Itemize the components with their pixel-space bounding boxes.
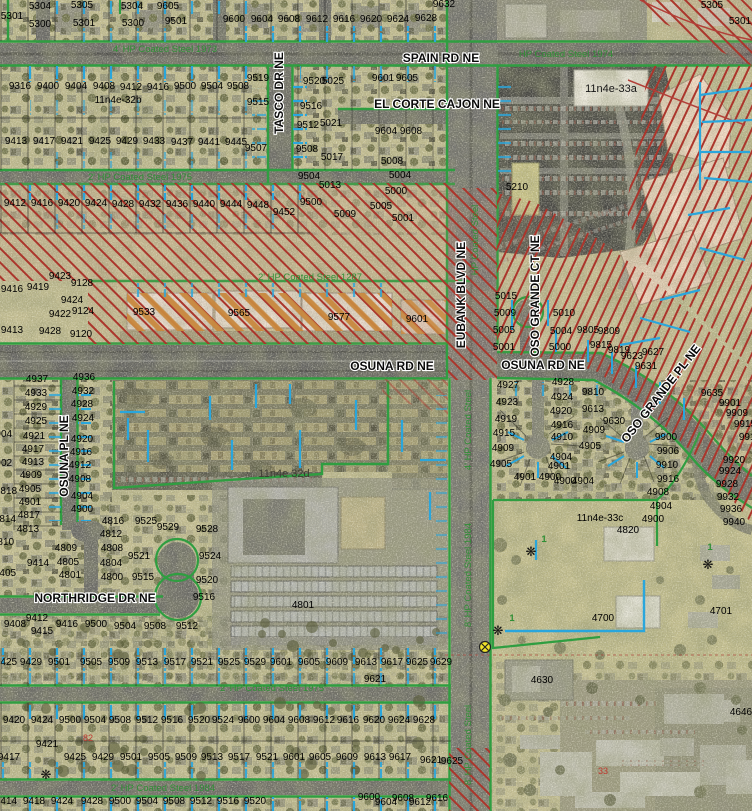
svg-text:5015: 5015: [495, 291, 518, 302]
svg-text:9500: 9500: [174, 81, 197, 92]
svg-text:9501: 9501: [120, 752, 143, 763]
svg-text:9617: 9617: [381, 657, 404, 668]
svg-text:9500: 9500: [85, 619, 108, 630]
svg-text:9508: 9508: [296, 144, 319, 155]
svg-text:9433: 9433: [143, 136, 166, 147]
svg-text:9516: 9516: [161, 715, 184, 726]
svg-text:HP Coated Steel 1974: HP Coated Steel 1974: [519, 49, 613, 60]
svg-text:4932: 4932: [72, 386, 95, 397]
svg-text:4809: 4809: [55, 543, 78, 554]
svg-text:5300: 5300: [29, 19, 52, 30]
svg-text:9605: 9605: [396, 73, 419, 84]
svg-text:9608: 9608: [400, 126, 423, 137]
svg-text:9517: 9517: [164, 657, 187, 668]
svg-text:9516: 9516: [193, 592, 216, 603]
svg-text:9608: 9608: [288, 715, 311, 726]
svg-text:9415: 9415: [31, 626, 54, 637]
svg-text:9500: 9500: [109, 796, 132, 807]
svg-text:9936: 9936: [720, 504, 743, 515]
svg-text:9425: 9425: [89, 136, 112, 147]
svg-text:9500: 9500: [59, 715, 82, 726]
svg-text:9440: 9440: [193, 199, 216, 210]
svg-text:4902: 4902: [0, 458, 13, 469]
svg-text:1: 1: [541, 534, 547, 545]
svg-text:9528: 9528: [196, 524, 219, 535]
svg-text:9425: 9425: [0, 657, 18, 668]
svg-text:4701: 4701: [710, 606, 733, 617]
svg-text:8' HP Coated Steel: 8' HP Coated Steel: [463, 705, 474, 785]
svg-text:2' HP Coated Steel 1975: 2' HP Coated Steel 1975: [220, 683, 324, 694]
svg-text:9501: 9501: [165, 16, 188, 27]
svg-text:5021: 5021: [320, 118, 343, 129]
svg-text:5005: 5005: [493, 325, 516, 336]
svg-text:9604: 9604: [375, 126, 398, 137]
svg-text:9432: 9432: [139, 199, 162, 210]
svg-text:4817: 4817: [18, 510, 41, 521]
svg-text:5017: 5017: [321, 152, 344, 163]
svg-text:9919: 9919: [739, 432, 752, 443]
svg-text:9424: 9424: [61, 295, 84, 306]
svg-text:4910: 4910: [551, 432, 574, 443]
svg-text:5001: 5001: [493, 342, 516, 353]
svg-text:5009: 5009: [334, 209, 357, 220]
svg-text:9620: 9620: [360, 14, 383, 25]
svg-text:1: 1: [707, 542, 713, 553]
svg-text:33: 33: [598, 766, 608, 776]
svg-text:9625: 9625: [406, 657, 429, 668]
svg-text:4916: 4916: [70, 447, 93, 458]
svg-text:11n4e-32b: 11n4e-32b: [94, 95, 142, 106]
svg-text:NORTHRIDGE DR NE: NORTHRIDGE DR NE: [34, 591, 155, 605]
svg-text:4928: 4928: [71, 399, 94, 410]
svg-text:2' HP Coated Steel 1287: 2' HP Coated Steel 1287: [258, 272, 362, 283]
svg-text:4646: 4646: [730, 707, 752, 718]
svg-text:EUBANK BLVD NE: EUBANK BLVD NE: [454, 242, 468, 348]
svg-text:5010: 5010: [553, 308, 576, 319]
svg-text:4901: 4901: [19, 497, 42, 508]
svg-text:9413: 9413: [5, 136, 28, 147]
svg-text:9419: 9419: [27, 282, 50, 293]
svg-text:5301: 5301: [1, 11, 24, 22]
svg-text:9452: 9452: [273, 207, 296, 218]
svg-text:5001: 5001: [392, 213, 415, 224]
svg-text:9616: 9616: [333, 14, 356, 25]
svg-text:4' HP Coated Steel: 4' HP Coated Steel: [463, 390, 474, 470]
svg-text:9604: 9604: [251, 14, 274, 25]
svg-text:4630: 4630: [531, 675, 554, 686]
svg-text:4920: 4920: [550, 406, 573, 417]
svg-text:9805: 9805: [577, 325, 600, 336]
svg-text:9504: 9504: [298, 171, 321, 182]
svg-text:5004: 5004: [389, 170, 412, 181]
svg-text:4905: 4905: [19, 484, 42, 495]
svg-text:9416: 9416: [147, 82, 170, 93]
svg-text:4808: 4808: [101, 543, 124, 554]
svg-text:11n4e-33a: 11n4e-33a: [585, 83, 638, 95]
svg-text:1: 1: [509, 613, 515, 624]
svg-text:9529: 9529: [244, 657, 267, 668]
svg-text:9500: 9500: [300, 197, 323, 208]
svg-text:❋: ❋: [41, 767, 52, 782]
svg-text:9617: 9617: [389, 752, 412, 763]
svg-text:9608: 9608: [278, 14, 301, 25]
svg-text:❋: ❋: [703, 557, 714, 572]
svg-text:9915: 9915: [734, 419, 752, 430]
svg-text:4916: 4916: [551, 420, 574, 431]
svg-text:9612: 9612: [313, 715, 336, 726]
svg-text:4924: 4924: [72, 413, 95, 424]
svg-text:4915: 4915: [493, 428, 516, 439]
svg-text:9509: 9509: [175, 752, 198, 763]
svg-text:4908: 4908: [69, 474, 92, 485]
svg-text:9505: 9505: [80, 657, 103, 668]
svg-text:9621: 9621: [364, 674, 387, 685]
svg-text:9505: 9505: [148, 752, 171, 763]
svg-text:9529: 9529: [157, 522, 180, 533]
svg-text:82: 82: [83, 733, 93, 743]
svg-text:9501: 9501: [48, 657, 71, 668]
svg-text:9916: 9916: [657, 474, 680, 485]
svg-text:9512: 9512: [297, 120, 320, 131]
svg-text:9429: 9429: [20, 657, 43, 668]
svg-text:9525: 9525: [135, 516, 158, 527]
svg-text:9521: 9521: [256, 752, 279, 763]
svg-text:9525: 9525: [218, 657, 241, 668]
svg-text:4805: 4805: [57, 557, 80, 568]
svg-text:9601: 9601: [283, 752, 306, 763]
svg-text:9906: 9906: [657, 446, 680, 457]
svg-text:9516: 9516: [300, 101, 323, 112]
svg-text:4912: 4912: [69, 460, 92, 471]
svg-text:9424: 9424: [85, 198, 108, 209]
svg-text:9521: 9521: [128, 551, 151, 562]
svg-text:9428: 9428: [39, 326, 62, 337]
svg-text:9624: 9624: [387, 14, 410, 25]
svg-text:9613: 9613: [582, 404, 605, 415]
svg-text:4917: 4917: [22, 444, 45, 455]
svg-text:8' HP Coated Steel 1984: 8' HP Coated Steel 1984: [463, 523, 474, 627]
svg-text:5301: 5301: [73, 18, 96, 29]
svg-text:9629: 9629: [430, 657, 453, 668]
svg-text:9421: 9421: [61, 136, 84, 147]
svg-text:9444: 9444: [220, 199, 243, 210]
svg-text:5301: 5301: [729, 16, 752, 27]
svg-text:9425: 9425: [64, 752, 87, 763]
svg-text:4928: 4928: [552, 377, 575, 388]
svg-text:9520: 9520: [196, 575, 219, 586]
svg-text:OSUNA RD NE: OSUNA RD NE: [501, 358, 585, 372]
svg-text:9412: 9412: [4, 198, 27, 209]
svg-text:4812: 4812: [100, 529, 123, 540]
svg-text:4929: 4929: [25, 402, 48, 413]
svg-text:9316: 9316: [9, 81, 32, 92]
svg-text:9601: 9601: [372, 73, 395, 84]
svg-text:EL CORTE CAJON NE: EL CORTE CAJON NE: [374, 97, 500, 111]
svg-text:9621: 9621: [420, 755, 443, 766]
svg-text:9613: 9613: [355, 657, 378, 668]
svg-text:9524: 9524: [212, 715, 235, 726]
svg-text:4905: 4905: [490, 459, 513, 470]
svg-text:4925: 4925: [25, 416, 48, 427]
svg-text:4904: 4904: [650, 501, 673, 512]
svg-text:4909: 4909: [583, 425, 606, 436]
svg-text:9616: 9616: [426, 793, 449, 804]
svg-text:9429: 9429: [116, 136, 139, 147]
svg-text:4905: 4905: [579, 441, 602, 452]
svg-text:9416: 9416: [1, 284, 24, 295]
svg-text:9604: 9604: [263, 715, 286, 726]
svg-text:2' HP Coated Steel 1984: 2' HP Coated Steel 1984: [111, 783, 215, 794]
svg-text:9628: 9628: [413, 715, 436, 726]
svg-text:5004: 5004: [550, 326, 573, 337]
svg-text:9577: 9577: [328, 312, 351, 323]
svg-text:9565: 9565: [228, 308, 251, 319]
svg-text:9928: 9928: [716, 479, 739, 490]
svg-text:9504: 9504: [114, 621, 137, 632]
svg-text:9600: 9600: [223, 14, 246, 25]
svg-text:9940: 9940: [723, 517, 746, 528]
svg-text:9625: 9625: [441, 756, 464, 767]
svg-text:9612: 9612: [306, 14, 329, 25]
svg-text:9423: 9423: [49, 271, 72, 282]
svg-text:9605: 9605: [298, 657, 321, 668]
svg-text:9416: 9416: [56, 619, 79, 630]
svg-text:OSO GRANDE CT NE: OSO GRANDE CT NE: [528, 235, 542, 356]
svg-text:4904: 4904: [572, 476, 595, 487]
svg-text:9421: 9421: [36, 739, 59, 750]
svg-text:9420: 9420: [3, 715, 26, 726]
svg-text:9631: 9631: [635, 361, 658, 372]
svg-text:5025: 5025: [322, 76, 345, 87]
svg-text:9512: 9512: [136, 715, 159, 726]
svg-text:4933: 4933: [25, 388, 48, 399]
svg-text:4909: 4909: [492, 443, 515, 454]
svg-text:9601: 9601: [406, 314, 429, 325]
svg-text:9509: 9509: [108, 657, 131, 668]
svg-text:5000: 5000: [385, 186, 408, 197]
svg-text:9412: 9412: [26, 613, 49, 624]
svg-text:9508: 9508: [163, 796, 186, 807]
svg-text:9413: 9413: [1, 325, 24, 336]
svg-text:4900: 4900: [642, 514, 665, 525]
svg-text:4924: 4924: [551, 392, 574, 403]
svg-text:OSUNA RD NE: OSUNA RD NE: [350, 359, 434, 373]
svg-text:9605: 9605: [157, 1, 180, 12]
svg-text:9605: 9605: [309, 752, 332, 763]
svg-text:9120: 9120: [70, 329, 93, 340]
svg-text:4908: 4908: [647, 487, 670, 498]
svg-text:9414: 9414: [0, 796, 18, 807]
svg-text:9437: 9437: [171, 137, 194, 148]
svg-text:9600: 9600: [238, 715, 261, 726]
svg-text:4923: 4923: [496, 397, 519, 408]
svg-text:9632: 9632: [433, 0, 456, 10]
svg-text:5013: 5013: [319, 180, 342, 191]
svg-text:OSUNA PL NE: OSUNA PL NE: [57, 415, 71, 496]
svg-text:9504: 9504: [136, 796, 159, 807]
svg-text:9520: 9520: [244, 796, 267, 807]
svg-text:11n4e-33c: 11n4e-33c: [577, 513, 624, 524]
svg-text:9512: 9512: [190, 796, 213, 807]
svg-text:9517: 9517: [228, 752, 251, 763]
svg-text:9512: 9512: [176, 621, 199, 632]
svg-text:9508: 9508: [144, 621, 167, 632]
svg-text:4' HP Coated Steel 1973: 4' HP Coated Steel 1973: [113, 44, 217, 55]
svg-text:9429: 9429: [92, 752, 115, 763]
svg-text:4900: 4900: [71, 504, 94, 515]
svg-text:9508: 9508: [109, 715, 132, 726]
svg-text:4813: 4813: [17, 524, 40, 535]
svg-text:9408: 9408: [4, 619, 27, 630]
svg-text:11n4e 32d: 11n4e 32d: [258, 468, 309, 480]
svg-text:❋: ❋: [493, 623, 504, 638]
svg-text:9924: 9924: [719, 466, 742, 477]
svg-text:TASCO DR NE: TASCO DR NE: [272, 52, 286, 134]
svg-text:4801: 4801: [292, 600, 315, 611]
svg-text:9513: 9513: [136, 657, 159, 668]
svg-text:9609: 9609: [336, 752, 359, 763]
svg-text:9620: 9620: [363, 715, 386, 726]
svg-text:5009: 5009: [494, 308, 517, 319]
svg-text:9412: 9412: [120, 82, 143, 93]
svg-text:9416: 9416: [31, 198, 54, 209]
svg-text:4820: 4820: [617, 525, 640, 536]
svg-text:9910: 9910: [656, 460, 679, 471]
svg-text:5000: 5000: [549, 342, 572, 353]
svg-text:9448: 9448: [247, 200, 270, 211]
svg-text:4801: 4801: [59, 570, 82, 581]
svg-text:❋: ❋: [526, 544, 537, 559]
svg-text:9504: 9504: [201, 81, 224, 92]
svg-text:9630: 9630: [603, 416, 626, 427]
svg-text:9521: 9521: [191, 657, 214, 668]
svg-text:4919: 4919: [495, 414, 518, 425]
svg-text:2' HP Coated Steel 1975: 2' HP Coated Steel 1975: [88, 172, 192, 183]
svg-text:9920: 9920: [723, 455, 746, 466]
svg-text:9128: 9128: [71, 278, 94, 289]
svg-text:9428: 9428: [81, 796, 104, 807]
svg-text:4936: 4936: [73, 372, 96, 383]
svg-text:4901: 4901: [514, 472, 537, 483]
svg-text:9507: 9507: [245, 143, 268, 154]
svg-text:4920: 4920: [71, 434, 94, 445]
svg-text:5008: 5008: [381, 156, 404, 167]
svg-text:9414: 9414: [27, 558, 50, 569]
svg-text:9613: 9613: [364, 752, 387, 763]
svg-text:9428: 9428: [112, 199, 135, 210]
svg-text:4927: 4927: [497, 380, 520, 391]
svg-text:9400: 9400: [37, 81, 60, 92]
svg-text:5210: 5210: [506, 182, 529, 193]
svg-text:4800: 4800: [101, 572, 124, 583]
svg-text:9609: 9609: [326, 657, 349, 668]
svg-text:4913: 4913: [22, 457, 45, 468]
svg-text:4810: 4810: [0, 537, 15, 548]
svg-text:9533: 9533: [133, 307, 156, 318]
svg-text:5005: 5005: [370, 201, 393, 212]
svg-text:9515: 9515: [132, 572, 155, 583]
svg-text:4937: 4937: [26, 374, 49, 385]
svg-text:9516: 9516: [217, 796, 240, 807]
svg-text:9124: 9124: [72, 306, 95, 317]
svg-text:9627: 9627: [642, 347, 665, 358]
svg-text:9424: 9424: [51, 796, 74, 807]
svg-text:9405: 9405: [0, 568, 17, 579]
svg-text:9624: 9624: [388, 715, 411, 726]
svg-text:4909: 4909: [20, 470, 43, 481]
svg-text:9909: 9909: [726, 408, 749, 419]
svg-text:5304: 5304: [29, 1, 52, 12]
svg-text:5305: 5305: [701, 0, 724, 11]
svg-text:4818: 4818: [0, 486, 18, 497]
svg-text:9417: 9417: [0, 752, 21, 763]
svg-text:9404: 9404: [65, 81, 88, 92]
svg-text:9519: 9519: [247, 73, 270, 84]
svg-text:HP Coated Steel: HP Coated Steel: [470, 205, 481, 276]
svg-text:9900: 9900: [655, 432, 678, 443]
svg-text:4700: 4700: [592, 613, 615, 624]
svg-text:9524: 9524: [199, 551, 222, 562]
svg-text:4814: 4814: [0, 514, 17, 525]
svg-text:4904: 4904: [71, 491, 94, 502]
svg-text:4816: 4816: [102, 516, 125, 527]
svg-text:9408: 9408: [93, 81, 116, 92]
svg-text:9504: 9504: [84, 715, 107, 726]
svg-text:9422: 9422: [49, 309, 72, 320]
svg-text:4921: 4921: [23, 431, 46, 442]
svg-text:9932: 9932: [717, 492, 740, 503]
svg-text:9513: 9513: [201, 752, 224, 763]
svg-text:9515: 9515: [247, 97, 270, 108]
svg-text:5304: 5304: [121, 1, 144, 12]
svg-text:9616: 9616: [337, 715, 360, 726]
svg-text:5300: 5300: [122, 18, 145, 29]
svg-text:9424: 9424: [31, 715, 54, 726]
svg-text:SPAIN RD NE: SPAIN RD NE: [403, 51, 479, 65]
svg-text:9436: 9436: [166, 199, 189, 210]
svg-text:9809: 9809: [598, 326, 621, 337]
svg-text:9417: 9417: [33, 136, 56, 147]
svg-text:9601: 9601: [270, 657, 293, 668]
svg-text:9810: 9810: [582, 387, 605, 398]
svg-text:9420: 9420: [58, 198, 81, 209]
svg-text:9628: 9628: [415, 13, 438, 24]
svg-text:9418: 9418: [23, 796, 46, 807]
svg-text:9520: 9520: [188, 715, 211, 726]
svg-text:4901: 4901: [548, 461, 571, 472]
svg-text:5305: 5305: [71, 0, 94, 11]
svg-text:9441: 9441: [198, 137, 221, 148]
svg-text:4904: 4904: [0, 429, 13, 440]
svg-text:4804: 4804: [100, 558, 123, 569]
